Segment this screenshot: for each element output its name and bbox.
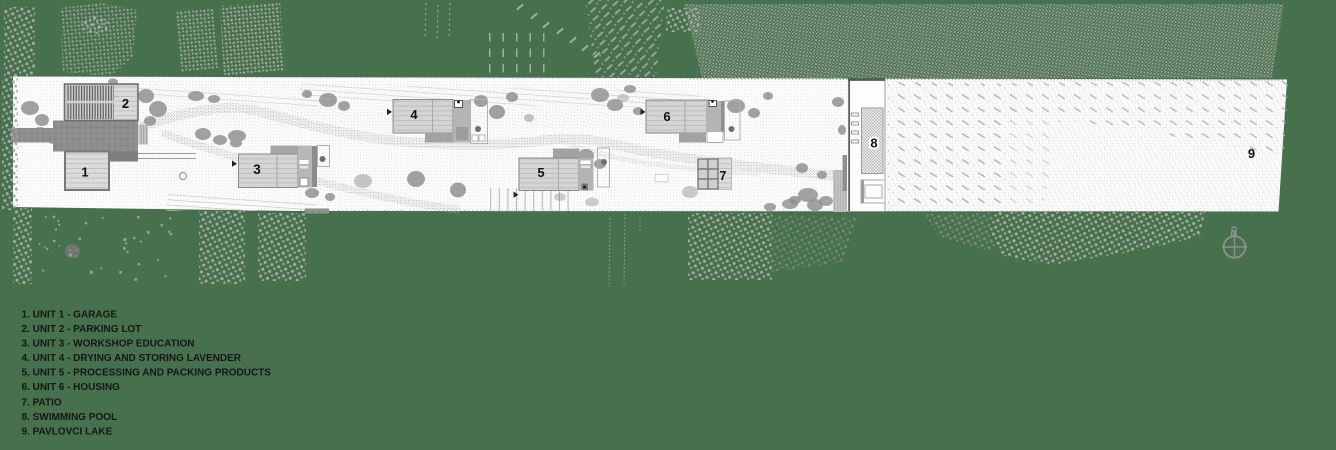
svg-text:5: 5 [537,165,544,180]
svg-text:8: 8 [870,136,877,151]
svg-text:1: 1 [81,165,88,180]
svg-text:2: 2 [122,96,129,111]
svg-text:4: 4 [410,107,418,122]
svg-text:6. UNIT 6 - HOUSING: 6. UNIT 6 - HOUSING [22,382,121,393]
svg-text:3: 3 [253,162,261,177]
svg-text:6: 6 [663,109,670,124]
svg-text:1. UNIT 1 - GARAGE: 1. UNIT 1 - GARAGE [22,310,118,321]
svg-text:9: 9 [1248,146,1255,161]
svg-text:2. UNIT 2 - PARKING LOT: 2. UNIT 2 - PARKING LOT [22,324,142,335]
svg-text:5. UNIT 5 - PROCESSING AND PAC: 5. UNIT 5 - PROCESSING AND PACKING PRODU… [22,367,272,378]
svg-text:9. PAVLOVCI LAKE: 9. PAVLOVCI LAKE [22,426,113,437]
svg-text:3. UNIT 3 - WORKSHOP EDUCATION: 3. UNIT 3 - WORKSHOP EDUCATION [22,339,195,350]
svg-text:7: 7 [720,169,727,183]
svg-text:8. SWIMMING POOL: 8. SWIMMING POOL [22,412,118,423]
svg-text:4. UNIT 4 - DRYING AND STORING: 4. UNIT 4 - DRYING AND STORING LAVENDER [22,353,242,364]
svg-text:7. PATIO: 7. PATIO [22,397,62,408]
